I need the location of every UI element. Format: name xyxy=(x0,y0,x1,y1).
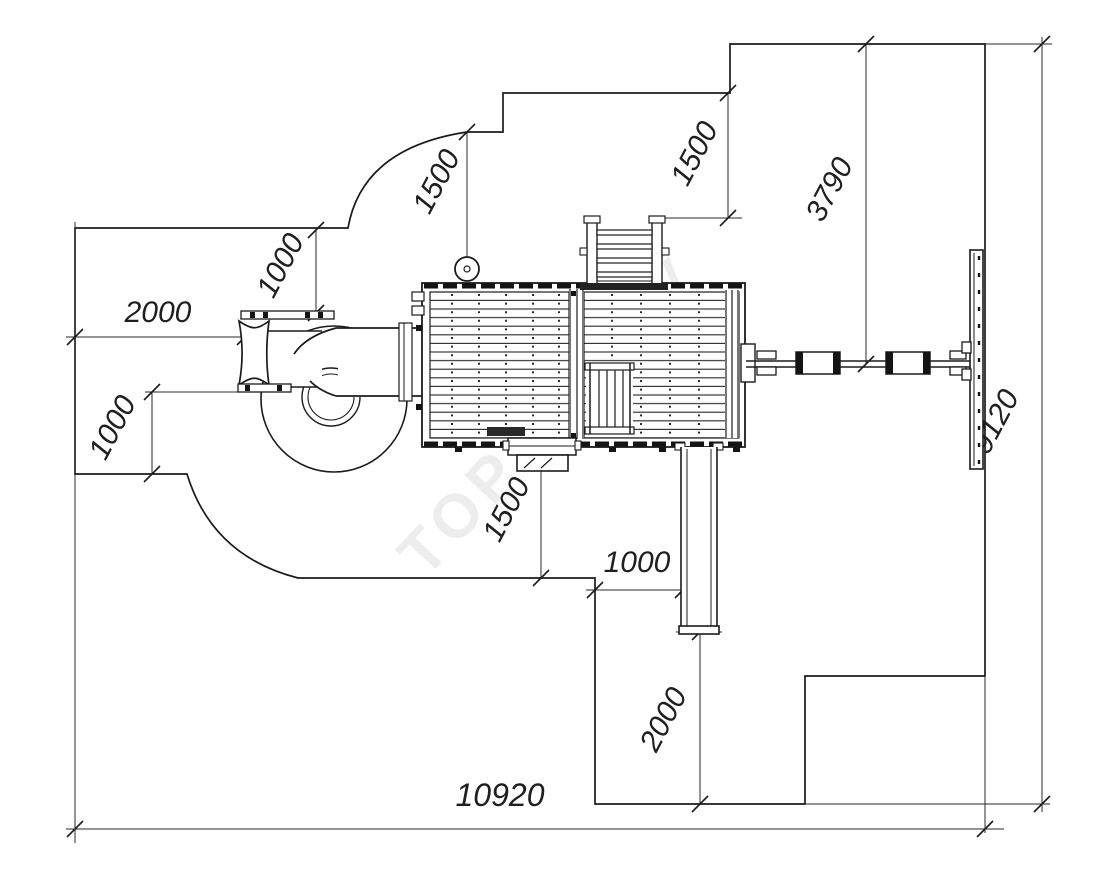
left-grip xyxy=(412,306,424,315)
dim-label-1000-bottom-left: 1000 xyxy=(82,390,143,465)
dim-label-1500-wheel: 1500 xyxy=(406,144,467,219)
ladder-rung xyxy=(597,230,652,235)
tube-slide xyxy=(238,311,438,472)
dim-label-2000-runout: 2000 xyxy=(633,682,694,758)
beam-sleeve xyxy=(796,352,840,374)
dim-label-1000-slide: 1000 xyxy=(604,546,671,579)
deck-left xyxy=(430,292,569,438)
tube-slide-exit xyxy=(239,321,269,385)
internal-stairs xyxy=(585,363,634,435)
ladder-rung xyxy=(597,272,652,277)
board-panel xyxy=(970,250,983,469)
platform-right-wall xyxy=(725,290,739,438)
slide-end-cap xyxy=(679,626,719,634)
technical-drawing-page: ТОРУДА.РУ xyxy=(0,0,1110,879)
straight-slide xyxy=(675,443,723,634)
platform xyxy=(412,257,745,471)
beam-sleeve xyxy=(886,352,930,374)
beam-post xyxy=(741,344,755,382)
dim-label-10920-width: 10920 xyxy=(456,777,545,813)
dim-label-1000-top-left: 1000 xyxy=(250,228,311,303)
dim-label-2000-left: 2000 xyxy=(124,296,192,329)
deck-dark-plank xyxy=(487,427,525,436)
tube-coupling xyxy=(399,323,412,401)
ladder-rung xyxy=(597,258,652,263)
ladder-rail-left xyxy=(587,219,597,285)
left-grip xyxy=(412,292,424,301)
steering-wheel xyxy=(455,257,479,281)
dim-label-1500-ladder: 1500 xyxy=(664,116,725,191)
ladder-rung xyxy=(597,244,652,249)
platform-divider xyxy=(569,289,584,439)
dim-label-3790-beam: 3790 xyxy=(799,152,860,227)
ladder-base xyxy=(580,283,668,290)
playground-plan-drawing: ТОРУДА.РУ xyxy=(0,0,1110,879)
swing-beam xyxy=(741,344,971,382)
ladder-rail-right xyxy=(652,219,662,285)
